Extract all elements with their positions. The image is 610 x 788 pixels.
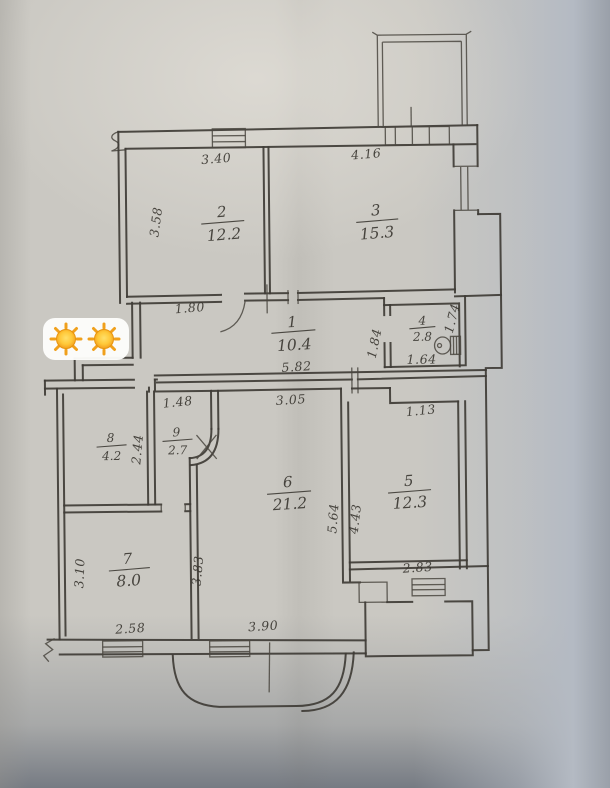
room-4-label: 4 2.8 [409, 314, 435, 344]
room-9-label: 9 2.7 [162, 425, 192, 457]
balcony-top-right [372, 31, 472, 126]
room-6-number: 6 [282, 473, 293, 492]
dim-room6-width-bottom: 3.90 [248, 617, 279, 634]
dim-room3-width: 4.16 [350, 145, 382, 162]
dim-wc-depth: 1.84 [364, 327, 385, 360]
sun-emoji-1 [51, 324, 81, 354]
dim-room2-depth: 3.58 [146, 206, 165, 238]
dim-room5-width-bottom: 2.83 [401, 559, 433, 576]
floor-plan-photo: 1 10.4 2 12.2 3 15.3 4 2.8 5 [0, 0, 610, 788]
dim-room7-width: 2.58 [114, 620, 146, 637]
room-7-number: 7 [122, 550, 133, 569]
room-2-label: 2 12.2 [201, 202, 244, 245]
room-4-number: 4 [417, 314, 426, 328]
floor-plan-drawing: 1 10.4 2 12.2 3 15.3 4 2.8 5 [0, 0, 610, 788]
room-8-label: 8 4.2 [96, 431, 126, 463]
dim-wc-width: 1.64 [406, 352, 436, 367]
dim-room6-right: 5.64 [324, 503, 341, 534]
room-6-label: 6 21.2 [267, 473, 311, 515]
sun-emoji-2 [89, 324, 119, 354]
dim-room5-left: 4.43 [346, 503, 364, 536]
dim-room6-width-top: 3.05 [275, 391, 306, 408]
room-3-area: 15.3 [359, 223, 395, 244]
room-7-label: 7 8.0 [109, 549, 150, 590]
room-8-number: 8 [107, 431, 115, 445]
room-9-number: 9 [173, 425, 181, 439]
room-3-number: 3 [370, 201, 381, 220]
dim-hall-width: 5.82 [281, 358, 312, 375]
room-9-area: 2.7 [167, 443, 188, 457]
room-4-area: 2.8 [412, 330, 433, 344]
room-2-area: 12.2 [206, 224, 242, 245]
dim-room9-width: 1.48 [162, 393, 194, 411]
room-5-area: 12.3 [392, 493, 428, 513]
room-1-label: 1 10.4 [271, 313, 315, 356]
dim-room8-depth: 2.44 [128, 433, 146, 466]
room-7-area: 8.0 [116, 571, 142, 591]
dim-room5-notch: 1.13 [405, 401, 437, 419]
balcony-bottom-right [365, 601, 473, 656]
room-1-area: 10.4 [276, 335, 312, 355]
room-2-number: 2 [215, 202, 227, 221]
room-3-label: 3 15.3 [356, 201, 398, 244]
room-1-number: 1 [287, 313, 298, 332]
room-5-number: 5 [403, 472, 414, 491]
dim-room7-right: 3.83 [189, 555, 207, 587]
room-6-area: 21.2 [271, 494, 308, 514]
room-labels: 1 10.4 2 12.2 3 15.3 4 2.8 5 [94, 200, 438, 590]
sun-emoji-overlay [43, 318, 129, 360]
room-5-label: 5 12.3 [388, 471, 431, 513]
toilet-icon [434, 336, 460, 354]
balcony-bottom-curved [173, 652, 355, 712]
outer-walls [38, 125, 505, 662]
room-8-area: 4.2 [101, 449, 121, 463]
dim-hall-left: 1.80 [174, 299, 205, 316]
dim-room7-left: 3.10 [71, 558, 87, 589]
dim-room2-width: 3.40 [201, 150, 232, 167]
